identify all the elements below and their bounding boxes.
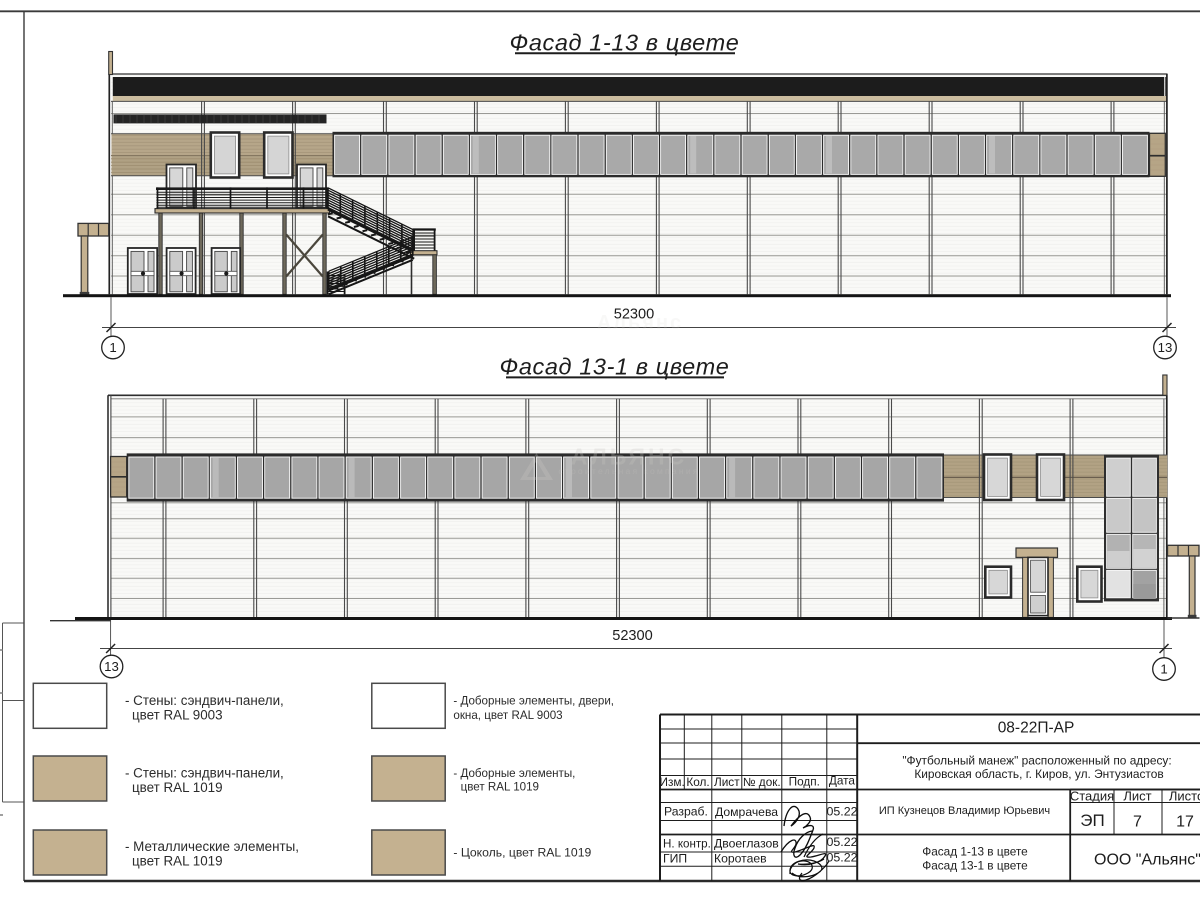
- svg-text:Фасад 1-13 в цвете: Фасад 1-13 в цвете: [922, 845, 1028, 859]
- svg-text:05.22: 05.22: [826, 851, 857, 865]
- svg-text:Альянс: Альянс: [597, 312, 683, 334]
- svg-text:цвет RAL 1019: цвет RAL 1019: [132, 780, 223, 795]
- svg-text:Кол.: Кол.: [686, 775, 709, 789]
- svg-text:№ док.: № док.: [743, 775, 781, 789]
- svg-text:05.22: 05.22: [826, 805, 857, 819]
- svg-text:цвет RAL 1019: цвет RAL 1019: [132, 854, 223, 869]
- svg-text:05.22: 05.22: [826, 835, 857, 849]
- svg-text:Двоеглазов: Двоеглазов: [714, 837, 779, 851]
- svg-text:- Стены: сэндвич-панели,: - Стены: сэндвич-панели,: [125, 765, 284, 780]
- svg-text:Подп.: Подп.: [789, 775, 820, 789]
- svg-text:17: 17: [1176, 814, 1194, 831]
- svg-text:- Доборные элементы, двери,: - Доборные элементы, двери,: [453, 694, 614, 707]
- svg-text:Стадия: Стадия: [1070, 789, 1114, 804]
- svg-text:Разраб.: Разраб.: [664, 805, 708, 819]
- svg-text:"Футбольный манеж" расположенн: "Футбольный манеж" расположенный по адре…: [902, 754, 1171, 768]
- svg-text:цвет RAL 1019: цвет RAL 1019: [461, 780, 539, 793]
- svg-text:строительная компания: строительная компания: [558, 466, 699, 476]
- svg-text:- Цоколь, цвет RAL 1019: - Цоколь, цвет RAL 1019: [453, 845, 591, 859]
- svg-text:ГИП: ГИП: [663, 852, 687, 866]
- svg-text:- Стены: сэндвич-панели,: - Стены: сэндвич-панели,: [125, 693, 284, 708]
- svg-text:Дата: Дата: [829, 774, 856, 788]
- svg-text:08-22П-АР: 08-22П-АР: [998, 720, 1075, 737]
- svg-text:Н. контр.: Н. контр.: [663, 838, 711, 851]
- svg-text:ООО "Альянс": ООО "Альянс": [1094, 852, 1200, 869]
- svg-text:Фасад 13-1 в цвете: Фасад 13-1 в цвете: [500, 354, 730, 380]
- svg-text:Коротаев: Коротаев: [714, 852, 767, 866]
- svg-text:52300: 52300: [612, 628, 653, 644]
- svg-text:13: 13: [104, 659, 119, 674]
- svg-text:Домрачева: Домрачева: [715, 805, 778, 819]
- svg-text:Изм.: Изм.: [660, 775, 685, 789]
- svg-text:1: 1: [1160, 662, 1167, 677]
- svg-text:ИП Кузнецов Владимир Юрьевич: ИП Кузнецов Владимир Юрьевич: [879, 805, 1050, 817]
- svg-text:цвет RAL 9003: цвет RAL 9003: [132, 708, 223, 723]
- svg-text:окна, цвет RAL 9003: окна, цвет RAL 9003: [453, 709, 562, 722]
- svg-text:7: 7: [1133, 814, 1142, 831]
- svg-text:- Доборные элементы,: - Доборные элементы,: [453, 767, 575, 780]
- svg-text:13: 13: [1158, 340, 1173, 355]
- svg-text:Листов: Листов: [1169, 789, 1200, 804]
- svg-text:- Металлические элементы,: - Металлические элементы,: [125, 839, 299, 854]
- svg-text:1: 1: [109, 340, 116, 355]
- svg-text:Лист: Лист: [1123, 789, 1151, 804]
- svg-text:Кировская область, г. Киров, у: Кировская область, г. Киров, ул. Энтузиа…: [914, 767, 1163, 781]
- svg-text:Фасад 13-1 в цвете: Фасад 13-1 в цвете: [922, 859, 1028, 873]
- svg-text:ЭП: ЭП: [1080, 811, 1104, 830]
- svg-text:Фасад 1-13 в цвете: Фасад 1-13 в цвете: [510, 30, 740, 56]
- svg-text:Лист: Лист: [714, 775, 740, 789]
